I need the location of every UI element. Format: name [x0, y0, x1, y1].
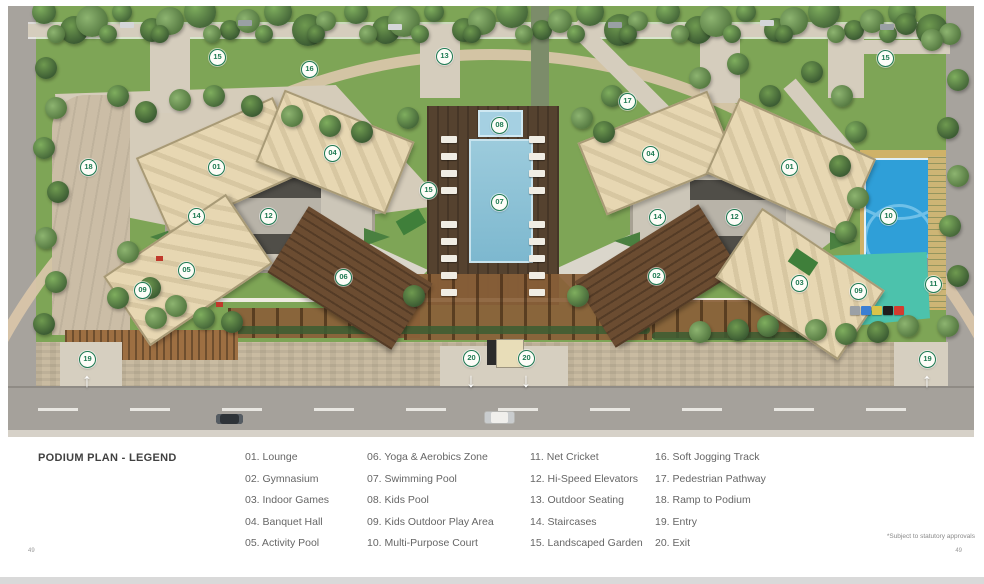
play-equipment-block	[872, 306, 882, 315]
plan-marker-01: 01	[208, 159, 225, 176]
tree	[689, 321, 711, 343]
tree	[939, 215, 961, 237]
legend-item-04: 04. Banquet Hall	[245, 517, 329, 528]
parked-car	[238, 20, 252, 26]
plan-marker-18: 18	[80, 159, 97, 176]
tree	[921, 29, 943, 51]
legend-item-02: 02. Gymnasium	[245, 474, 329, 485]
plan-marker-15: 15	[420, 182, 437, 199]
tree	[424, 6, 444, 22]
tree	[727, 53, 749, 75]
lounge-chair	[529, 153, 545, 160]
tree	[47, 25, 65, 43]
lounge-chair	[529, 272, 545, 279]
parked-car	[608, 22, 622, 28]
tree	[835, 323, 857, 345]
tree	[359, 25, 377, 43]
legend-item-08: 08. Kids Pool	[367, 495, 494, 506]
legend-title: PODIUM PLAN - LEGEND	[38, 452, 177, 464]
tree	[47, 181, 69, 203]
tree	[736, 6, 756, 22]
legend-item-19: 19. Entry	[655, 517, 766, 528]
page-number-left: 49	[28, 548, 35, 554]
play-equipment-block	[861, 306, 871, 315]
tree	[255, 25, 273, 43]
lounge-chair	[441, 238, 457, 245]
tree	[571, 107, 593, 129]
entry-arrow-icon: ↑	[922, 371, 932, 391]
tree	[397, 107, 419, 129]
exit-arrow-icon: ↓	[466, 371, 476, 391]
tree	[757, 315, 779, 337]
legend-item-06: 06. Yoga & Aerobics Zone	[367, 452, 494, 463]
red-furniture	[216, 302, 223, 307]
play-equipment-block	[850, 306, 860, 315]
parked-car	[120, 22, 134, 28]
legend-item-09: 09. Kids Outdoor Play Area	[367, 517, 494, 528]
site-plan: 1516131715180104081507040114121412100509…	[8, 6, 974, 437]
plan-marker-06: 06	[335, 269, 352, 286]
plan-marker-05: 05	[178, 262, 195, 279]
tree	[33, 313, 55, 335]
plan-marker-01: 01	[781, 159, 798, 176]
legend-item-01: 01. Lounge	[245, 452, 329, 463]
tree	[411, 25, 429, 43]
red-furniture	[156, 256, 163, 261]
plan-marker-19: 19	[919, 351, 936, 368]
lounge-chair	[529, 187, 545, 194]
tree	[775, 25, 793, 43]
tree	[344, 6, 368, 24]
lounge-chair	[441, 289, 457, 296]
tree	[947, 165, 969, 187]
tree	[567, 25, 585, 43]
tree	[727, 319, 749, 341]
plan-marker-15: 15	[877, 50, 894, 67]
car-dark	[216, 414, 243, 424]
plan-marker-11: 11	[925, 276, 942, 293]
lounge-chair	[441, 255, 457, 262]
tree	[281, 105, 303, 127]
tree	[117, 241, 139, 263]
lounge-chair	[441, 170, 457, 177]
tree	[897, 315, 919, 337]
legend-item-03: 03. Indoor Games	[245, 495, 329, 506]
plan-marker-19: 19	[79, 351, 96, 368]
tree	[145, 307, 167, 329]
plan-marker-07: 07	[491, 194, 508, 211]
legend-item-07: 07. Swimming Pool	[367, 474, 494, 485]
lounge-chair	[529, 289, 545, 296]
plan-marker-16: 16	[301, 61, 318, 78]
legend-column-1: 01. Lounge02. Gymnasium03. Indoor Games0…	[245, 452, 329, 560]
legend-item-13: 13. Outdoor Seating	[530, 495, 643, 506]
tree	[759, 85, 781, 107]
tree	[947, 69, 969, 91]
tree	[937, 315, 959, 337]
tree	[671, 25, 689, 43]
tree	[35, 227, 57, 249]
tree	[801, 61, 823, 83]
legend-item-16: 16. Soft Jogging Track	[655, 452, 766, 463]
exit-arrow-icon: ↓	[521, 371, 531, 391]
lounge-chair	[441, 187, 457, 194]
tree	[135, 101, 157, 123]
tree	[827, 25, 845, 43]
plan-marker-13: 13	[436, 48, 453, 65]
plan-marker-12: 12	[726, 209, 743, 226]
tree	[867, 321, 889, 343]
lounge-chair	[529, 221, 545, 228]
legend-item-20: 20. Exit	[655, 538, 766, 549]
tree	[203, 25, 221, 43]
plan-marker-12: 12	[260, 208, 277, 225]
tree	[151, 25, 169, 43]
plan-marker-02: 02	[648, 268, 665, 285]
tree	[723, 25, 741, 43]
tree	[107, 287, 129, 309]
plan-marker-04: 04	[642, 146, 659, 163]
tree	[165, 295, 187, 317]
tree	[45, 271, 67, 293]
plan-marker-15: 15	[209, 49, 226, 66]
tree	[193, 307, 215, 329]
tree	[112, 6, 132, 22]
brochure-page: 1516131715180104081507040114121412100509…	[0, 0, 984, 584]
tree	[32, 6, 56, 24]
legend-column-3: 11. Net Cricket12. Hi-Speed Elevators13.…	[530, 452, 643, 560]
tree	[835, 221, 857, 243]
plan-marker-17: 17	[619, 93, 636, 110]
plan-marker-14: 14	[188, 208, 205, 225]
tree	[264, 6, 292, 26]
legend-item-17: 17. Pedestrian Pathway	[655, 474, 766, 485]
tree	[805, 319, 827, 341]
sidewalk	[8, 430, 974, 437]
gate-house-dark	[487, 340, 496, 365]
legend-panel: PODIUM PLAN - LEGEND 01. Lounge02. Gymna…	[0, 444, 984, 576]
lounge-chair	[441, 221, 457, 228]
car-white	[484, 411, 515, 424]
tree	[351, 121, 373, 143]
tree	[241, 95, 263, 117]
tree	[593, 121, 615, 143]
parked-car	[760, 20, 774, 26]
tree	[203, 85, 225, 107]
legend-item-10: 10. Multi-Purpose Court	[367, 538, 494, 549]
tree	[307, 25, 325, 43]
hedge	[230, 326, 650, 334]
parked-car	[388, 24, 402, 30]
tree	[169, 89, 191, 111]
tree	[656, 6, 680, 24]
lounge-chair	[529, 170, 545, 177]
legend-item-18: 18. Ramp to Podium	[655, 495, 766, 506]
tree	[847, 187, 869, 209]
play-equipment-block	[894, 306, 904, 315]
legend-item-14: 14. Staircases	[530, 517, 643, 528]
tree	[937, 117, 959, 139]
lounge-chair	[529, 136, 545, 143]
lounge-chair	[529, 255, 545, 262]
tree	[35, 57, 57, 79]
parked-car	[880, 24, 894, 30]
tree	[895, 13, 917, 35]
lounge-chair	[529, 238, 545, 245]
tree	[33, 137, 55, 159]
page-edge-bar	[0, 577, 984, 584]
tree	[831, 85, 853, 107]
tree	[99, 25, 117, 43]
legend-column-4: 16. Soft Jogging Track17. Pedestrian Pat…	[655, 452, 766, 560]
legend-item-12: 12. Hi-Speed Elevators	[530, 474, 643, 485]
tree	[947, 265, 969, 287]
lounge-chair	[441, 153, 457, 160]
tree	[515, 25, 533, 43]
tree	[45, 97, 67, 119]
plan-marker-10: 10	[880, 208, 897, 225]
legend-column-2: 06. Yoga & Aerobics Zone07. Swimming Poo…	[367, 452, 494, 560]
plan-marker-09: 09	[134, 282, 151, 299]
tree	[567, 285, 589, 307]
tree	[221, 311, 243, 333]
entry-arrow-icon: ↑	[82, 371, 92, 391]
lounge-chair	[441, 136, 457, 143]
statutory-footnote: *Subject to statutory approvals	[887, 533, 975, 540]
tree	[845, 121, 867, 143]
plan-marker-20: 20	[518, 350, 535, 367]
lounge-chair	[441, 272, 457, 279]
page-number-right: 49	[955, 548, 962, 554]
tree	[403, 285, 425, 307]
plan-marker-20: 20	[463, 350, 480, 367]
tree	[689, 67, 711, 89]
legend-item-15: 15. Landscaped Garden	[530, 538, 643, 549]
plan-marker-04: 04	[324, 145, 341, 162]
play-equipment-block	[883, 306, 893, 315]
legend-item-05: 05. Activity Pool	[245, 538, 329, 549]
tree	[107, 85, 129, 107]
plan-marker-08: 08	[491, 117, 508, 134]
tree	[319, 115, 341, 137]
tree	[463, 25, 481, 43]
plan-marker-14: 14	[649, 209, 666, 226]
legend-item-11: 11. Net Cricket	[530, 452, 643, 463]
tree	[829, 155, 851, 177]
plan-marker-03: 03	[791, 275, 808, 292]
plan-marker-09: 09	[850, 283, 867, 300]
